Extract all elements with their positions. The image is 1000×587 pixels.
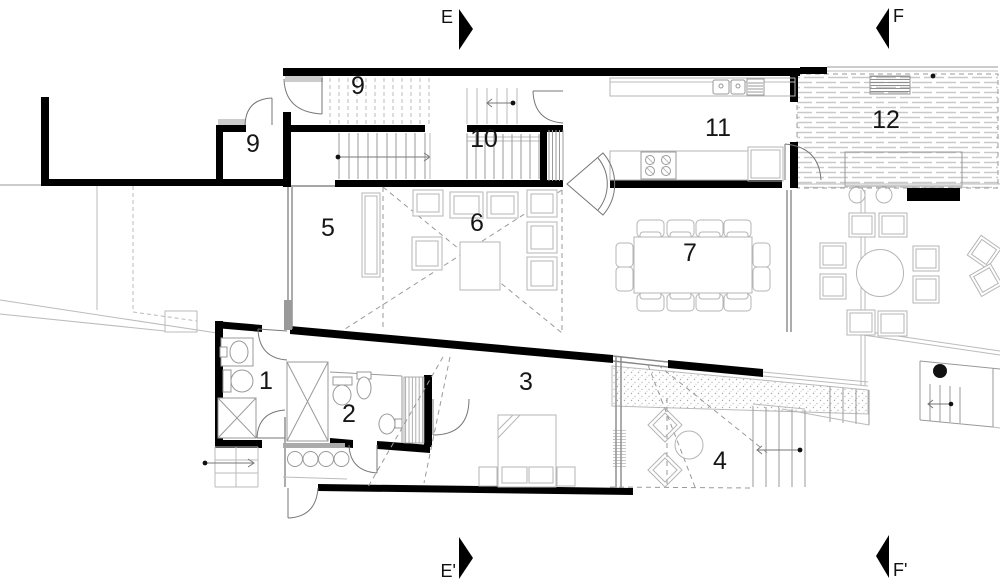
room-label-1: 1 [259, 367, 273, 395]
vanity-counter-edge [283, 443, 345, 448]
stair-flight-lower [336, 133, 430, 179]
vestibule-wall-north [216, 125, 246, 132]
corridor-wall-west [287, 125, 425, 132]
terrace-chair [970, 264, 1000, 297]
terrace-bench [907, 188, 960, 201]
kitchen-hall-door [533, 91, 563, 123]
nightstand [479, 467, 497, 486]
column-marker [933, 364, 947, 378]
kitchen-counter [610, 78, 795, 96]
pivot-fan-door [567, 153, 615, 215]
toilet-bowl [231, 370, 253, 392]
patio-4-furniture [648, 408, 703, 487]
corridor-floor-lines [330, 78, 429, 124]
room-label-10: 10 [470, 125, 498, 153]
sink-basin [379, 414, 395, 434]
room-label-6: 6 [470, 209, 484, 237]
entry-door-north [284, 78, 322, 114]
bidet [357, 377, 371, 399]
living-wall-south [290, 326, 613, 363]
kitchen-11 [610, 78, 795, 181]
main-wall-north-ext [800, 67, 827, 74]
threshold [218, 119, 246, 125]
section-marker-E-top: E [441, 7, 473, 50]
wash-basin [334, 452, 349, 467]
stair-wall-south [335, 180, 563, 187]
section-arrow-icon [459, 9, 473, 50]
kitchen-wall-east-upper [790, 68, 798, 102]
courtyard-wall-west [41, 97, 49, 186]
terrace-stool [849, 187, 865, 203]
room-label-3: 3 [519, 368, 533, 396]
kitchen-wall-east-lower [790, 142, 798, 188]
entry-wall-stub [283, 112, 291, 187]
floor-plan-page: 9 9 10 11 12 5 6 7 1 2 3 4 E F E' F' [0, 0, 1000, 587]
toilet-tank [223, 370, 231, 392]
vestibule-wall-west [216, 125, 223, 180]
threshold [285, 76, 323, 82]
room-label-12: 12 [872, 106, 900, 134]
room-label-5: 5 [321, 214, 335, 242]
room-label-9-hall: 9 [351, 72, 365, 100]
kitchen-stove [641, 152, 676, 179]
section-label-e-top: E [441, 7, 453, 27]
wash-basin [288, 452, 303, 467]
closet [404, 377, 424, 443]
terrace-table-set [820, 213, 939, 336]
section-marker-E-bottom: E' [441, 537, 473, 581]
exterior-stair-east [920, 361, 1000, 428]
section-arrow-icon [876, 8, 889, 49]
section-arrow-icon [459, 537, 473, 579]
nightstand [557, 467, 575, 486]
section-label-e-bottom: E' [441, 561, 456, 581]
outdoor-terrace [793, 184, 1000, 386]
bath-1 [218, 338, 256, 438]
kitchen-sink [713, 80, 745, 94]
section-marker-F-bottom: F' [876, 535, 907, 580]
vestibule-door [245, 98, 272, 125]
wardrobe [613, 428, 626, 468]
room-label-7: 7 [683, 239, 697, 267]
living-room-furniture [362, 190, 557, 290]
bath1-door-north [258, 329, 287, 360]
stair-wall-side [540, 127, 547, 187]
section-label-f-bottom: F' [893, 560, 907, 580]
room-label-11: 11 [705, 114, 731, 142]
stair-flight-upper [467, 88, 517, 124]
bedroom-3 [479, 415, 626, 487]
room-label-4: 4 [713, 447, 727, 475]
exterior-stair-southwest [203, 447, 258, 487]
entry-door-south [288, 488, 318, 518]
wash-basin [319, 452, 334, 467]
terrace-round-table [857, 250, 904, 297]
bath1-door-south [257, 410, 285, 438]
vanity-hall [283, 443, 349, 479]
glazing-mullion [284, 300, 292, 330]
bedroom-wall-south [318, 484, 633, 495]
bedroom-door [433, 399, 469, 435]
room-label-2: 2 [342, 400, 356, 428]
terrace-chair [967, 235, 1000, 268]
wash-basin [303, 452, 318, 467]
sink-basin [230, 341, 248, 363]
kitchen-dishwasher [747, 79, 764, 95]
toilet-tank [333, 377, 352, 385]
floor-plan-canvas: 9 9 10 11 12 5 6 7 1 2 3 4 E F E' F' [0, 0, 1000, 587]
section-marker-F-top: F [876, 6, 904, 49]
deck-grate [870, 76, 910, 94]
closet-wall-east [424, 375, 432, 447]
garden-stair-4 [753, 404, 805, 487]
kitchen-cabinet [748, 147, 783, 181]
coffee-table [460, 242, 500, 290]
vanity-door [349, 445, 377, 473]
room-label-9-vestibule: 9 [246, 130, 260, 158]
kitchen-island [610, 151, 748, 180]
section-label-f-top: F [893, 6, 904, 26]
deck-point-marker [931, 74, 936, 79]
section-arrow-icon [876, 535, 889, 578]
courtyard-wall-south [41, 179, 291, 186]
terrace-stool [876, 187, 892, 203]
